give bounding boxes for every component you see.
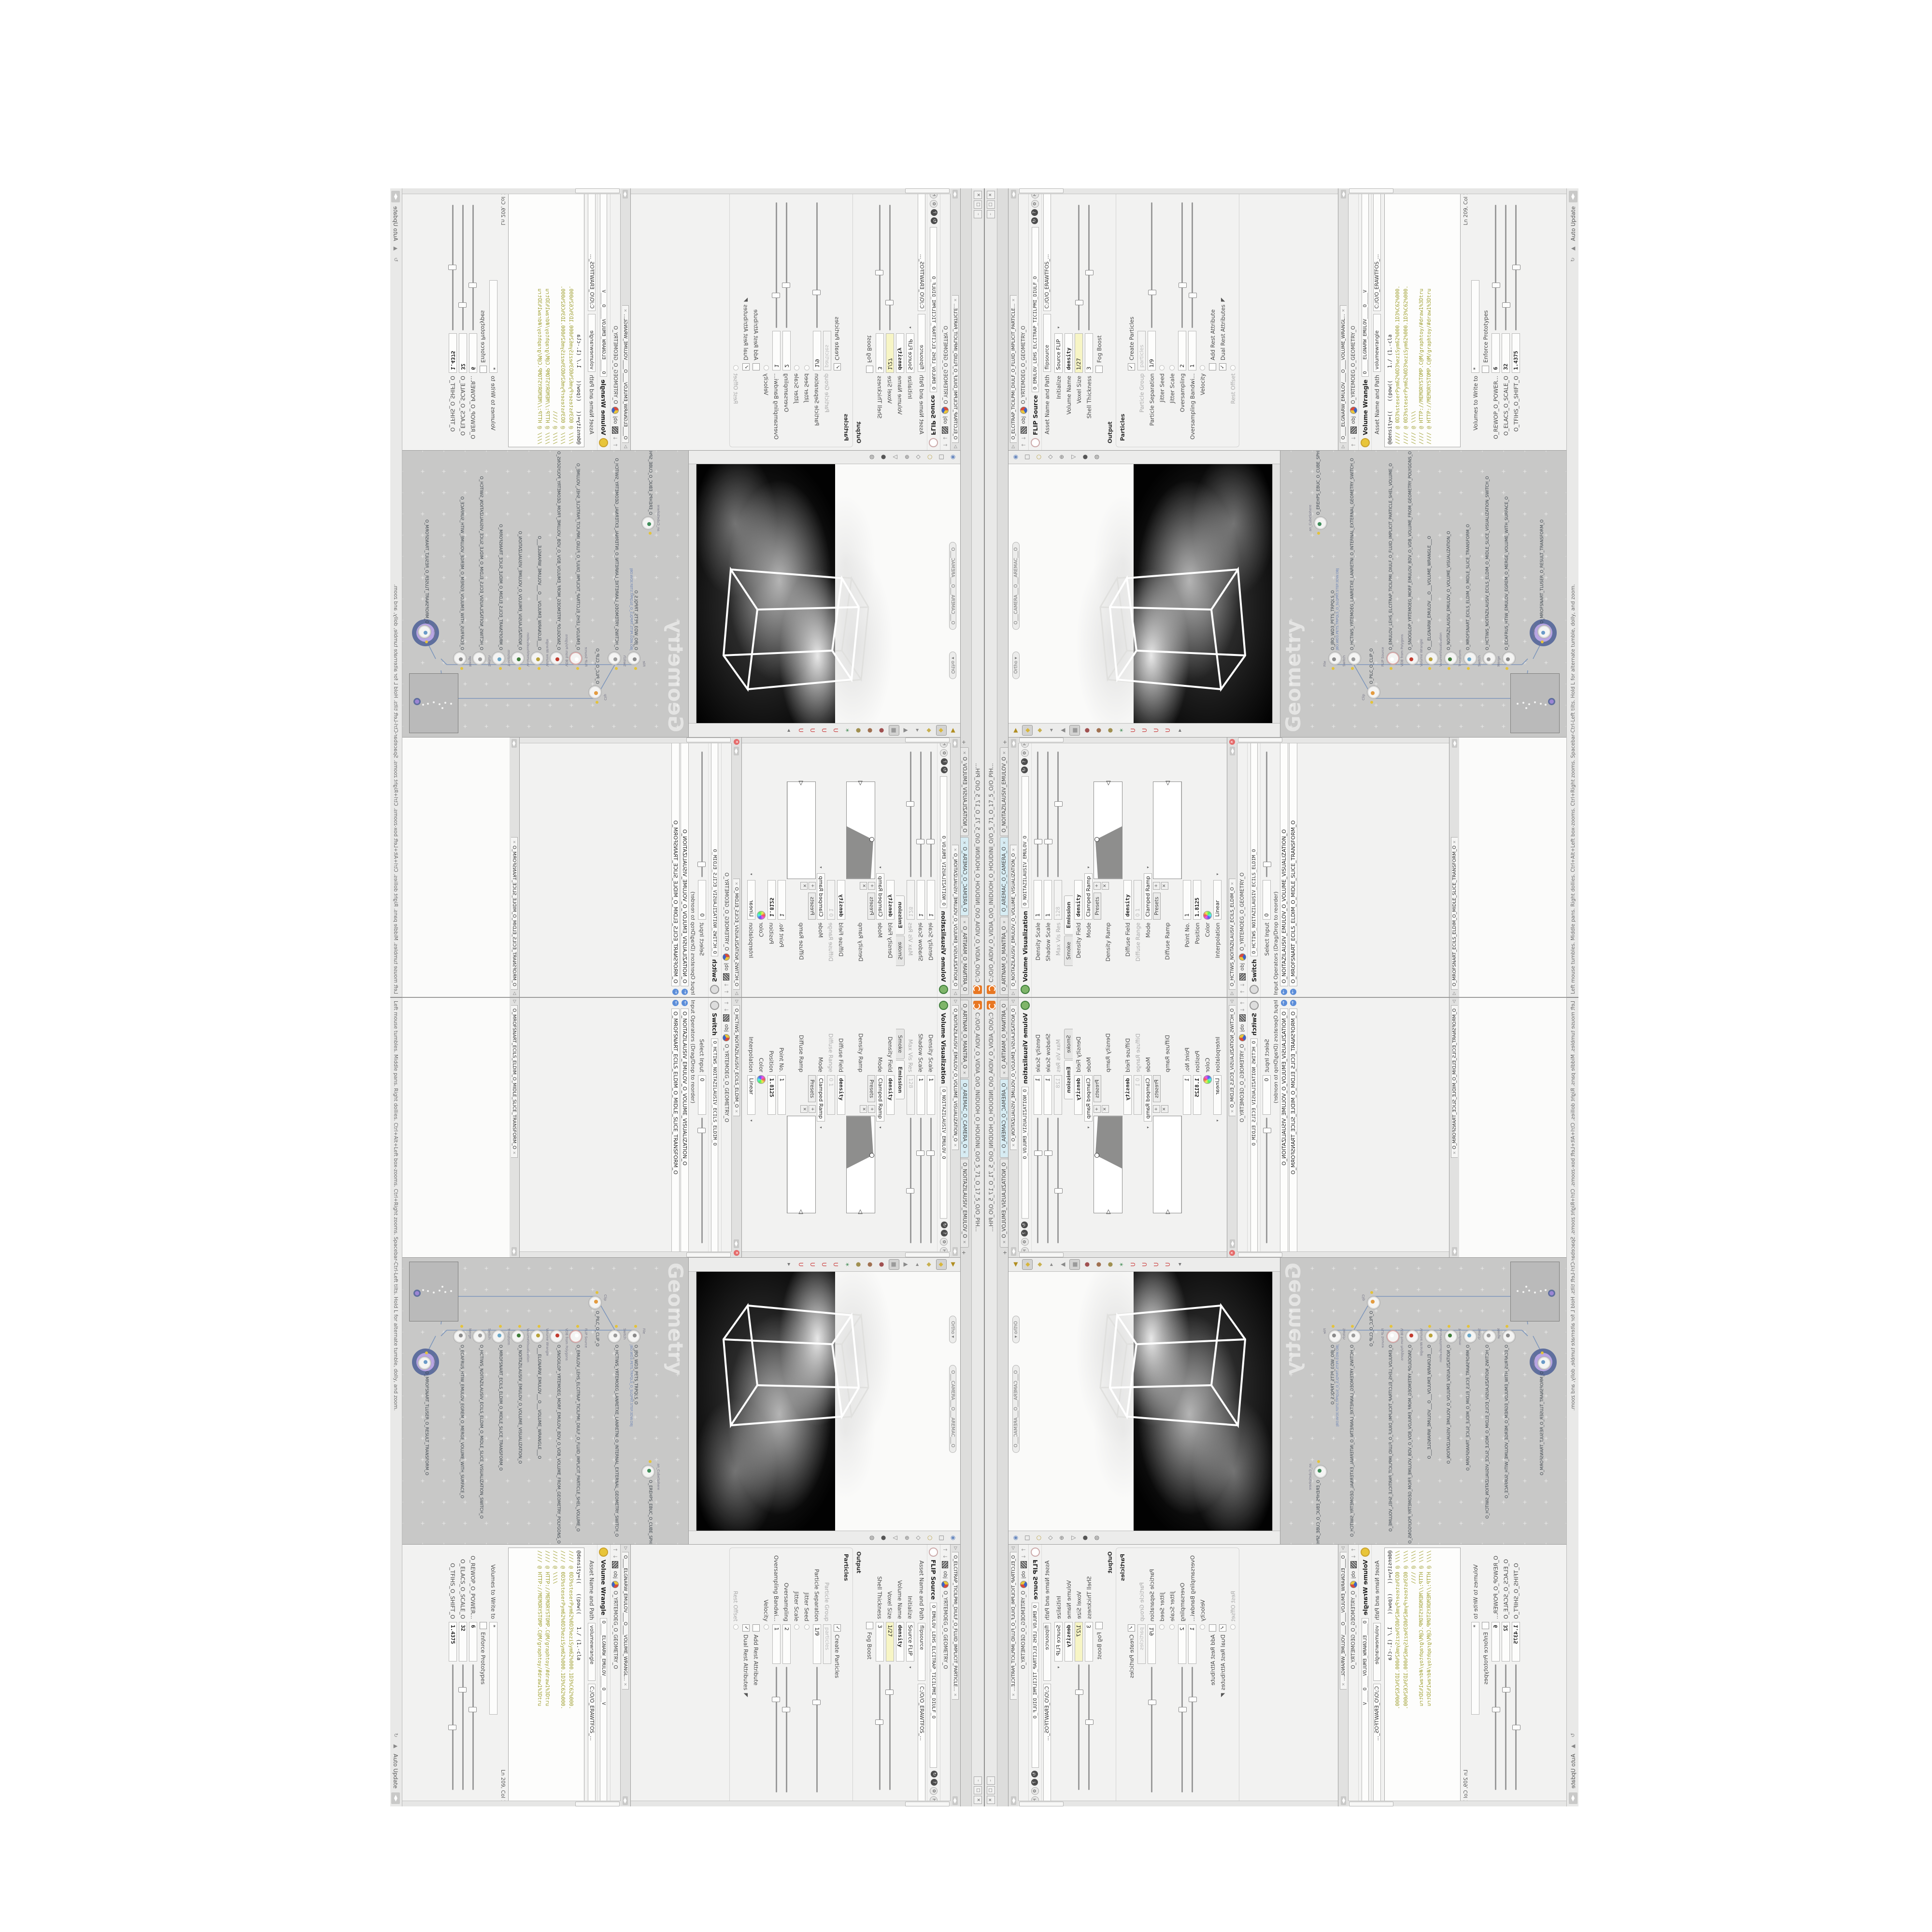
select-geometry-icon[interactable]: ◆ <box>924 1260 934 1269</box>
pane-scrollbar[interactable] <box>1018 188 1338 194</box>
pane-link-icon[interactable]: ▷ <box>953 445 958 448</box>
slider-thumb[interactable] <box>1179 1707 1187 1712</box>
asset-name-field[interactable]: flipsource <box>918 1623 925 1681</box>
scale-tool-icon[interactable]: ● <box>854 1260 864 1269</box>
pane-scrollbar[interactable] <box>630 188 951 194</box>
minimize-button[interactable]: – <box>987 1776 995 1785</box>
value-field[interactable]: 1 <box>927 880 935 920</box>
list-item-field[interactable]: O_MROFSNART_ECILS_ELDIM_O_MIDLE_SLICE_TR… <box>1289 1009 1297 1256</box>
slider-thumb[interactable] <box>1085 270 1094 275</box>
pane-network-editor[interactable]: Geometry FileO_JBO_WD3_PETS_TRPQLS_OJBO.… <box>402 1258 688 1545</box>
view-mode-pill[interactable]: Ortho ▾ <box>1012 1316 1020 1343</box>
slider-track[interactable] <box>816 202 818 328</box>
ramp-presets-button[interactable]: Presets <box>808 893 816 920</box>
pane-split-icon[interactable]: ◀▶ <box>953 190 958 199</box>
node-flag-icon[interactable] <box>538 1325 540 1328</box>
view-target-icon[interactable]: ◉ <box>949 1533 958 1543</box>
node-name-field[interactable]: O_HCTIWS_NOITAZILAUSIV_ECILS_ELDIM_O <box>711 740 719 956</box>
menu-field[interactable]: Clamped Ramp <box>817 873 825 920</box>
view-mode-pill[interactable]: Ortho ▾ <box>949 652 956 679</box>
node-flag-icon[interactable] <box>634 667 637 670</box>
pane-scrollbar[interactable] <box>1018 1251 1227 1258</box>
select-arrow-icon[interactable]: ▶ <box>949 1260 958 1269</box>
snap-point-magnet-icon[interactable]: U <box>819 1260 829 1269</box>
slider-track[interactable] <box>701 1118 703 1243</box>
interrupt-icon[interactable]: ▲ <box>392 245 399 252</box>
ramp-side-handle[interactable]: ◁ <box>857 781 864 785</box>
pane-split-icon[interactable]: ◀▶ <box>1341 190 1346 199</box>
asset-path-field[interactable]: C:/O/O_ERAWTFOS_... <box>1373 1684 1381 1804</box>
pane-tab[interactable]: O_NOITAZILAUSIV_EMULOV_O_VOLUME_VISUALIZ… <box>1010 845 1017 990</box>
display-flag-icon[interactable] <box>1317 532 1320 535</box>
value-field[interactable]: 1 <box>1183 880 1191 920</box>
value-field[interactable]: 3 <box>1085 333 1093 373</box>
value-field[interactable]: 32 <box>459 333 467 373</box>
ramp-side-handle[interactable]: ◁ <box>857 1209 864 1214</box>
slider-track[interactable] <box>1181 202 1183 328</box>
interrupt-icon[interactable]: ▲ <box>1569 1743 1577 1750</box>
node-body[interactable] <box>550 652 563 665</box>
reload-icon[interactable]: ↻ <box>931 1771 938 1777</box>
slider-track[interactable] <box>1495 1664 1496 1790</box>
close-tab-icon[interactable]: ✕ <box>512 1151 516 1154</box>
asset-name-field[interactable]: volumewrangle <box>1373 314 1381 372</box>
slider-thumb[interactable] <box>1263 1128 1271 1133</box>
node-name-field[interactable]: O____ELGNARW_EMULOV____O____V <box>1362 1618 1369 1804</box>
value-field[interactable]: 128 <box>1054 880 1062 920</box>
desktop-tab[interactable]: O_ARTNAM_O_MANTRA_O✕ <box>1000 1000 1008 1078</box>
slider-track[interactable] <box>1266 752 1267 877</box>
slider-thumb[interactable] <box>1075 300 1083 305</box>
value-field[interactable]: 1 <box>1034 1075 1042 1115</box>
slider-track[interactable] <box>1151 1667 1152 1792</box>
checkbox[interactable] <box>1209 1624 1216 1632</box>
node-flag-icon[interactable] <box>615 1325 618 1328</box>
breadcrumb-path[interactable]: O_YRTEMOEG_O_GEOMETRY_O <box>1350 1591 1356 1669</box>
value-field[interactable]: 128 <box>1054 1075 1062 1115</box>
folder-tab-emission[interactable]: Emission <box>1064 895 1073 935</box>
menu-field[interactable]: Clamped Ramp <box>1144 1075 1152 1122</box>
snap-edge-magnet-icon[interactable]: U <box>808 1260 817 1269</box>
slider-thumb[interactable] <box>906 1188 914 1193</box>
value-field[interactable]: density <box>1065 1622 1073 1662</box>
value-ladder-dot[interactable] <box>1200 365 1205 370</box>
pane-link-icon[interactable]: ▷ <box>953 1547 958 1550</box>
pane-split-icon[interactable]: ◀▶ <box>1011 1247 1016 1256</box>
value-field[interactable]: 3 <box>876 1622 884 1662</box>
material-preview-icon[interactable]: ◍ <box>1092 452 1101 462</box>
value-ladder-dot[interactable] <box>733 365 739 370</box>
slider-thumb[interactable] <box>1189 1697 1197 1702</box>
node-body[interactable] <box>1348 652 1361 665</box>
wireframe-mode-icon[interactable]: ◇ <box>914 452 923 462</box>
value-field[interactable]: 1.4375 <box>1512 333 1520 373</box>
value-field[interactable]: * <box>1471 280 1479 373</box>
view-pivot-icon[interactable]: ⊕ <box>902 452 912 462</box>
delete-point-icon[interactable]: ✕ <box>860 1105 867 1113</box>
reload-icon[interactable]: ↻ <box>941 1222 948 1228</box>
value-field[interactable]: 0 <box>1263 1075 1271 1115</box>
close-tab-icon[interactable]: ✕ <box>962 921 966 924</box>
nav-down-icon[interactable]: ↓ <box>1239 983 1246 987</box>
node-body[interactable] <box>1483 1330 1496 1343</box>
value-field[interactable]: particles <box>823 1624 831 1664</box>
close-button[interactable]: ✕ <box>974 191 982 199</box>
node-body[interactable] <box>1387 652 1399 665</box>
minimize-button[interactable]: – <box>974 1776 982 1785</box>
slider-thumb[interactable] <box>1054 1188 1063 1193</box>
pane-link-icon[interactable]: ▷ <box>953 1000 958 1003</box>
viewport-render-area[interactable]: O___CAMERA___O___AREMAC___O Ortho ▾ <box>688 1272 960 1531</box>
node-body[interactable] <box>627 1330 640 1343</box>
slider-thumb[interactable] <box>1148 1700 1156 1705</box>
snap-point-magnet-icon[interactable]: U <box>819 725 829 735</box>
breadcrumb-path[interactable]: O_YRTEMOEG_O_GEOMETRY_O <box>1021 1591 1026 1669</box>
slider-track[interactable] <box>786 202 787 328</box>
menu-field[interactable]: Source FLIP <box>906 1622 914 1662</box>
list-item[interactable]: ←O_NOITAZILAUSIV_EMULOV_O_VOLUME_VISUALI… <box>681 1000 689 1256</box>
move-tool-icon[interactable]: ● <box>877 725 887 735</box>
slider-thumb[interactable] <box>926 839 935 844</box>
pane-scrollbar[interactable] <box>1237 737 1449 743</box>
slider-track[interactable] <box>1037 1118 1038 1243</box>
folder-tab-smoke[interactable]: Smoke <box>896 1029 905 1059</box>
pane-split-icon[interactable]: ◀▶ <box>1011 739 1016 748</box>
maximize-button[interactable]: □ <box>974 200 982 209</box>
nav-down-icon[interactable]: ↓ <box>1021 1554 1027 1559</box>
node-name-field[interactable]: O____ELGNARW_EMULOV____O____V <box>600 191 608 377</box>
pane-link-icon[interactable]: ▷ <box>1011 1000 1016 1003</box>
desktop-tab[interactable]: O_ARTNAM_O_MANTRA_O✕ <box>1000 917 1008 995</box>
value-field[interactable]: 32 <box>1502 1622 1510 1662</box>
pane-tab[interactable]: O_MROFSNART_ECILS_ELDIM_O_MIDLE_SLICE_TR… <box>1451 837 1458 990</box>
node-flag-icon[interactable] <box>499 667 502 670</box>
gear-icon[interactable]: ⚙ <box>940 1238 948 1246</box>
vex-code-editor[interactable]: @density=(( ((pow(( 1./ (1.-cla//// @ 0D… <box>1384 1548 1461 1804</box>
slider-thumb[interactable] <box>1044 839 1052 844</box>
breadcrumb-root[interactable]: obj <box>942 416 948 424</box>
vex-code-editor[interactable]: @density=(( ((pow(( 1./ (1.-cla//// @ 0D… <box>1384 191 1461 447</box>
node-body[interactable] <box>1538 625 1550 638</box>
node-flag-icon[interactable] <box>596 1291 598 1294</box>
value-field[interactable]: density <box>1123 880 1132 920</box>
slider-thumb[interactable] <box>812 290 821 295</box>
snap-point-magnet-icon[interactable]: U <box>1140 1260 1150 1269</box>
pane-link-icon[interactable]: ▷ <box>1341 445 1346 448</box>
nav-up-icon[interactable]: ↑ <box>1350 1548 1357 1552</box>
rotate-tool-icon[interactable]: ● <box>1094 725 1103 735</box>
slider-thumb[interactable] <box>916 839 924 844</box>
close-tab-icon[interactable]: ✕ <box>623 1683 627 1686</box>
slider-track[interactable] <box>786 1667 787 1792</box>
snap-grid-magnet-icon[interactable]: U <box>1128 1260 1138 1269</box>
add-point-icon[interactable]: + <box>868 882 875 890</box>
pane-scrollbar[interactable] <box>1348 188 1566 194</box>
slider-track[interactable] <box>1078 1664 1080 1790</box>
value-field[interactable]: density <box>896 333 904 373</box>
node-flag-icon[interactable] <box>1541 640 1544 643</box>
value-field[interactable]: 6 <box>1492 333 1500 373</box>
node-body[interactable] <box>569 652 582 665</box>
pane-scrollbar[interactable] <box>519 737 732 743</box>
ramp-point-handle[interactable] <box>869 837 874 842</box>
slider-track[interactable] <box>910 1118 911 1243</box>
camera-lock-icon[interactable]: ▽ <box>891 452 900 462</box>
menu-field[interactable]: Linear <box>1213 880 1222 920</box>
nav-up-icon[interactable]: ↑ <box>612 443 619 447</box>
checkbox[interactable] <box>480 1622 487 1629</box>
node-body[interactable] <box>511 652 524 665</box>
node-name-field[interactable]: O_EMULOV_LEHS_ELCITRAP_TICILPMI_DIULF_O <box>1032 1603 1039 1768</box>
nav-down-icon[interactable]: ↓ <box>612 436 619 440</box>
node-flag-icon[interactable] <box>1467 1325 1470 1328</box>
slider-track[interactable] <box>1515 205 1517 330</box>
view-tool-icon[interactable]: ■ <box>889 1259 899 1270</box>
slider-track[interactable] <box>1088 205 1090 330</box>
add-point-icon[interactable]: + <box>1094 1105 1101 1113</box>
node-flag-icon[interactable] <box>518 1325 521 1328</box>
pane-scrollbar[interactable] <box>402 1801 621 1806</box>
node-name-field[interactable]: O_EMULOV_LEHS_ELCITRAP_TICILPMI_DIULF_O <box>1032 227 1039 392</box>
pane-split-icon[interactable]: ◀▶ <box>734 747 739 755</box>
list-item[interactable]: ←O_MROFSNART_ECILS_ELDIM_O_MIDLE_SLICE_T… <box>671 1000 680 1256</box>
gear-icon[interactable]: ⚙ <box>940 749 948 757</box>
pane-link-icon[interactable]: ▷ <box>1011 992 1016 995</box>
value-field[interactable]: * <box>489 1622 497 1715</box>
pane-split-icon[interactable]: ◀▶ <box>512 739 517 748</box>
close-tab-icon[interactable]: ✕ <box>962 751 966 754</box>
desktop-tab[interactable]: O_AREMAC_O_CAMERA_O✕ <box>1000 1079 1008 1157</box>
add-tab-icon[interactable]: + <box>961 738 967 746</box>
value-field[interactable]: density <box>837 880 845 920</box>
pane-split-icon[interactable]: ◀▶ <box>1452 1247 1457 1256</box>
recook-icon[interactable]: ↻ <box>1569 256 1577 263</box>
breadcrumb-root[interactable]: obj <box>612 416 618 424</box>
value-field[interactable]: density <box>886 880 895 920</box>
list-item[interactable]: ←O_NOITAZILAUSIV_EMULOV_O_VOLUME_VISUALI… <box>1280 739 1288 995</box>
nav-up-icon[interactable]: ↑ <box>1239 990 1246 994</box>
ramp-editor[interactable]: ◁ <box>846 1116 875 1213</box>
node-body[interactable] <box>1367 1296 1380 1309</box>
pane-link-icon[interactable]: ▷ <box>623 445 628 448</box>
desktop-tab[interactable]: O_NOITAZILAUSIV_EMULOV_O✕ <box>1000 747 1008 836</box>
pane-link-icon[interactable]: ▷ <box>623 1547 628 1550</box>
node-body[interactable] <box>569 1330 582 1343</box>
nav-down-icon[interactable]: ↓ <box>942 436 949 440</box>
shaded-mode-icon[interactable]: ○ <box>925 452 935 462</box>
close-tab-icon[interactable]: ✕ <box>953 298 957 302</box>
slider-thumb[interactable] <box>1044 1151 1052 1156</box>
update-mode-toggle[interactable]: ◀▶ <box>1569 191 1577 202</box>
value-field[interactable]: 1 <box>1188 1624 1196 1664</box>
pane-tab[interactable]: O____ELGNARW_EMULOV____O____VOLUME_WRANG… <box>1340 305 1347 443</box>
slider-thumb[interactable] <box>469 283 477 288</box>
slider-thumb[interactable] <box>916 1151 924 1156</box>
view-target-icon[interactable]: ◉ <box>949 452 958 462</box>
node-body[interactable] <box>1445 1330 1457 1343</box>
material-preview-icon[interactable]: ◍ <box>867 452 877 462</box>
ramp-editor[interactable]: ◁ <box>1094 781 1122 879</box>
close-tab-icon[interactable]: ✕ <box>953 1693 957 1697</box>
close-tab-icon[interactable]: ✕ <box>1452 840 1457 844</box>
shaded-mode-icon[interactable]: ○ <box>1034 1533 1043 1543</box>
nav-up-icon[interactable]: ↑ <box>1021 443 1027 447</box>
slider-track[interactable] <box>776 1667 777 1792</box>
pane-tab[interactable]: O____ELGNARW_EMULOV____O____VOLUME_WRANG… <box>622 1552 629 1690</box>
slider-track[interactable] <box>1192 1667 1193 1792</box>
desktop-tab[interactable]: O_NOITAZILAUSIV_EMULOV_O✕ <box>961 1159 969 1248</box>
expand-toolbar-icon[interactable]: ▸ <box>1175 1260 1184 1269</box>
desktop-tab[interactable]: O_AREMAC_O_CAMERA_O✕ <box>1000 837 1008 915</box>
value-field[interactable]: 128 <box>907 1075 915 1115</box>
node-body[interactable] <box>1367 686 1380 698</box>
node-name-field[interactable]: O_EMULOV_LEHS_ELCITRAP_TICILPMI_DIULF_O <box>930 227 938 392</box>
slider-thumb[interactable] <box>885 1690 894 1695</box>
interrupt-icon[interactable]: ▲ <box>392 1743 399 1750</box>
reload-icon[interactable]: ↻ <box>931 217 938 224</box>
rotate-tool-icon[interactable]: ● <box>866 1260 875 1269</box>
value-ladder-dot[interactable] <box>764 1624 769 1630</box>
node-name-field[interactable]: O_HCTIWS_NOITAZILAUSIV_ECILS_ELDIM_O <box>1250 1038 1258 1255</box>
value-field[interactable]: 0 1 <box>827 880 835 920</box>
pane-split-icon[interactable]: ◀▶ <box>623 1796 628 1805</box>
slider-thumb[interactable] <box>1512 1725 1520 1730</box>
slider-thumb[interactable] <box>1085 1719 1094 1725</box>
slider-track[interactable] <box>1047 1118 1049 1243</box>
close-tab-icon[interactable]: ✕ <box>962 841 966 844</box>
slider-track[interactable] <box>462 205 464 330</box>
slider-track[interactable] <box>462 1664 464 1790</box>
value-field[interactable]: 1/9 <box>1148 331 1156 370</box>
shaded-mode-icon[interactable]: ○ <box>925 1533 935 1543</box>
node-body[interactable] <box>550 1330 563 1343</box>
ramp-point-handle[interactable] <box>1094 1153 1099 1158</box>
value-field[interactable]: 1 <box>1044 880 1052 920</box>
pane-network-editor[interactable]: Geometry FileO_JBO_WD3_PETS_TRPQLS_OJBO.… <box>402 450 688 737</box>
slider-track[interactable] <box>1515 1664 1517 1790</box>
node-body[interactable] <box>473 652 485 665</box>
layout-single-icon[interactable]: □ <box>937 1533 947 1543</box>
view-tool-icon[interactable]: ■ <box>1069 725 1080 736</box>
node-name-field[interactable]: O_NOITAZILAUSIV_EMULOV_O <box>940 776 948 908</box>
viewport-render-area[interactable]: O___CAMERA___O___AREMAC___O Ortho ▾ <box>1009 464 1280 723</box>
gear-icon[interactable]: ⚙ <box>1031 1787 1039 1795</box>
pane-tab[interactable]: O_ELCITRAP_TICILPMI_DIULF_O_FLUID_IMPLIC… <box>1010 1552 1017 1700</box>
asset-path-field[interactable]: C:/O/O_ERAWTFOS_... <box>918 191 925 311</box>
pane-tab[interactable]: O_HCTIWS_NOITAZILAUSIV_ECILS_ELDIM_O✕ <box>733 879 740 990</box>
node-body[interactable] <box>454 652 466 665</box>
recook-icon[interactable]: ↻ <box>1569 1732 1577 1739</box>
nav-up-icon[interactable]: ↑ <box>612 1548 619 1552</box>
add-point-icon[interactable]: + <box>1153 1105 1160 1113</box>
view-target-icon[interactable]: ◉ <box>1010 452 1020 462</box>
menu-field[interactable]: Clamped Ramp <box>876 1075 884 1122</box>
value-field[interactable]: 1 <box>927 1075 935 1115</box>
menu-field[interactable]: Clamped Ramp <box>1084 1075 1093 1122</box>
close-tab-icon[interactable]: ✕ <box>1002 921 1007 924</box>
move-tool-icon[interactable]: ● <box>1082 1260 1092 1269</box>
checkbox[interactable]: ✓ <box>834 1624 841 1632</box>
pane-link-icon[interactable]: ▷ <box>1011 1547 1016 1550</box>
breadcrumb-path[interactable]: O_YRTEMOEG_O_GEOMETRY_O <box>724 1044 729 1122</box>
pane-scrollbar[interactable] <box>741 1251 951 1258</box>
slider-track[interactable] <box>1266 1118 1267 1243</box>
pane-link-icon[interactable]: ▷ <box>512 992 517 995</box>
value-field[interactable]: * <box>489 280 497 373</box>
camera-selector-pill[interactable]: O___CAMERA___O___AREMAC___O <box>1012 1365 1020 1453</box>
close-tab-icon[interactable]: ✕ <box>512 840 516 844</box>
add-tab-icon[interactable]: + <box>961 1249 967 1257</box>
node-body[interactable] <box>492 652 505 665</box>
pane-link-icon[interactable]: ▷ <box>734 992 739 995</box>
breadcrumb-path[interactable]: O_YRTEMOEG_O_GEOMETRY_O <box>942 326 948 404</box>
slider-thumb[interactable] <box>812 1700 821 1705</box>
value-field[interactable]: density <box>886 1075 895 1115</box>
pane-link-icon[interactable]: ▷ <box>953 992 958 995</box>
menu-field[interactable]: Linear <box>1213 1075 1222 1115</box>
close-tab-icon[interactable]: ✕ <box>1002 1151 1007 1154</box>
snap-edge-magnet-icon[interactable]: U <box>1151 725 1161 735</box>
value-field[interactable]: 1/9 <box>813 331 821 370</box>
checkbox[interactable] <box>866 1622 873 1629</box>
asset-path-field[interactable]: C:/O/O_ERAWTFOS_... <box>918 1684 925 1804</box>
slider-thumb[interactable] <box>1034 839 1042 844</box>
value-field[interactable]: 1.8125 <box>767 880 776 920</box>
camera-selector-pill[interactable]: O___CAMERA___O___AREMAC___O <box>1012 542 1020 630</box>
color-swatch[interactable] <box>1203 911 1212 920</box>
folder-tab-smoke[interactable]: Smoke <box>1064 1029 1073 1059</box>
value-ladder-dot[interactable] <box>733 1624 739 1630</box>
list-item-field[interactable]: O_NOITAZILAUSIV_EMULOV_O_VOLUME_VISUALIZ… <box>1280 739 1288 986</box>
slider-thumb[interactable] <box>697 862 706 867</box>
list-item[interactable]: ←O_MROFSNART_ECILS_ELDIM_O_MIDLE_SLICE_T… <box>671 739 680 995</box>
checkbox[interactable] <box>1482 366 1489 373</box>
slider-track[interactable] <box>1495 205 1496 330</box>
nav-down-icon[interactable]: ↓ <box>612 1554 619 1559</box>
value-field[interactable]: 1.4375 <box>449 1622 457 1662</box>
ramp-editor[interactable]: ◁ <box>1153 781 1182 879</box>
material-preview-icon[interactable]: ◍ <box>1092 1533 1101 1543</box>
node-body[interactable] <box>1348 1330 1361 1343</box>
close-tab-icon[interactable]: ✕ <box>962 1071 966 1075</box>
value-field[interactable]: particles <box>1137 1624 1146 1664</box>
snap-multi-magnet-icon[interactable]: U <box>1163 1260 1173 1269</box>
pane-tab[interactable]: O_MROFSNART_ECILS_ELDIM_O_MIDLE_SLICE_TR… <box>511 837 518 990</box>
value-field[interactable]: 32 <box>459 1622 467 1662</box>
pane-tab[interactable]: O_ELCITRAP_TICILPMI_DIULF_O_FLUID_IMPLIC… <box>952 1552 959 1700</box>
value-ladder-dot[interactable] <box>1169 365 1175 370</box>
node-body[interactable] <box>1483 652 1496 665</box>
handles-icon[interactable]: ▲ <box>1058 725 1067 735</box>
update-mode-label[interactable]: Auto Update <box>1570 206 1577 241</box>
nav-up-icon[interactable]: ↑ <box>724 1001 730 1005</box>
display-flag-icon[interactable] <box>649 532 652 535</box>
value-ladder-dot[interactable] <box>1230 365 1236 370</box>
value-field[interactable]: 3 <box>1085 1622 1093 1662</box>
nav-up-icon[interactable]: ↑ <box>1239 1001 1246 1005</box>
slider-track[interactable] <box>879 1664 881 1790</box>
close-tab-icon[interactable]: ✕ <box>1452 1151 1457 1154</box>
ramp-presets-button[interactable]: Presets <box>1153 1075 1161 1102</box>
slider-track[interactable] <box>1192 202 1193 328</box>
node-flag-icon[interactable] <box>1351 667 1354 670</box>
slider-track[interactable] <box>920 752 922 877</box>
node-body[interactable] <box>608 1330 621 1343</box>
node-body[interactable] <box>1425 652 1438 665</box>
value-field[interactable]: density <box>896 1622 904 1662</box>
value-field[interactable]: 1.8125 <box>1193 1075 1201 1115</box>
pane-tab[interactable]: O_HCTIWS_NOITAZILAUSIV_ECILS_ELDIM_O✕ <box>1229 1005 1236 1116</box>
